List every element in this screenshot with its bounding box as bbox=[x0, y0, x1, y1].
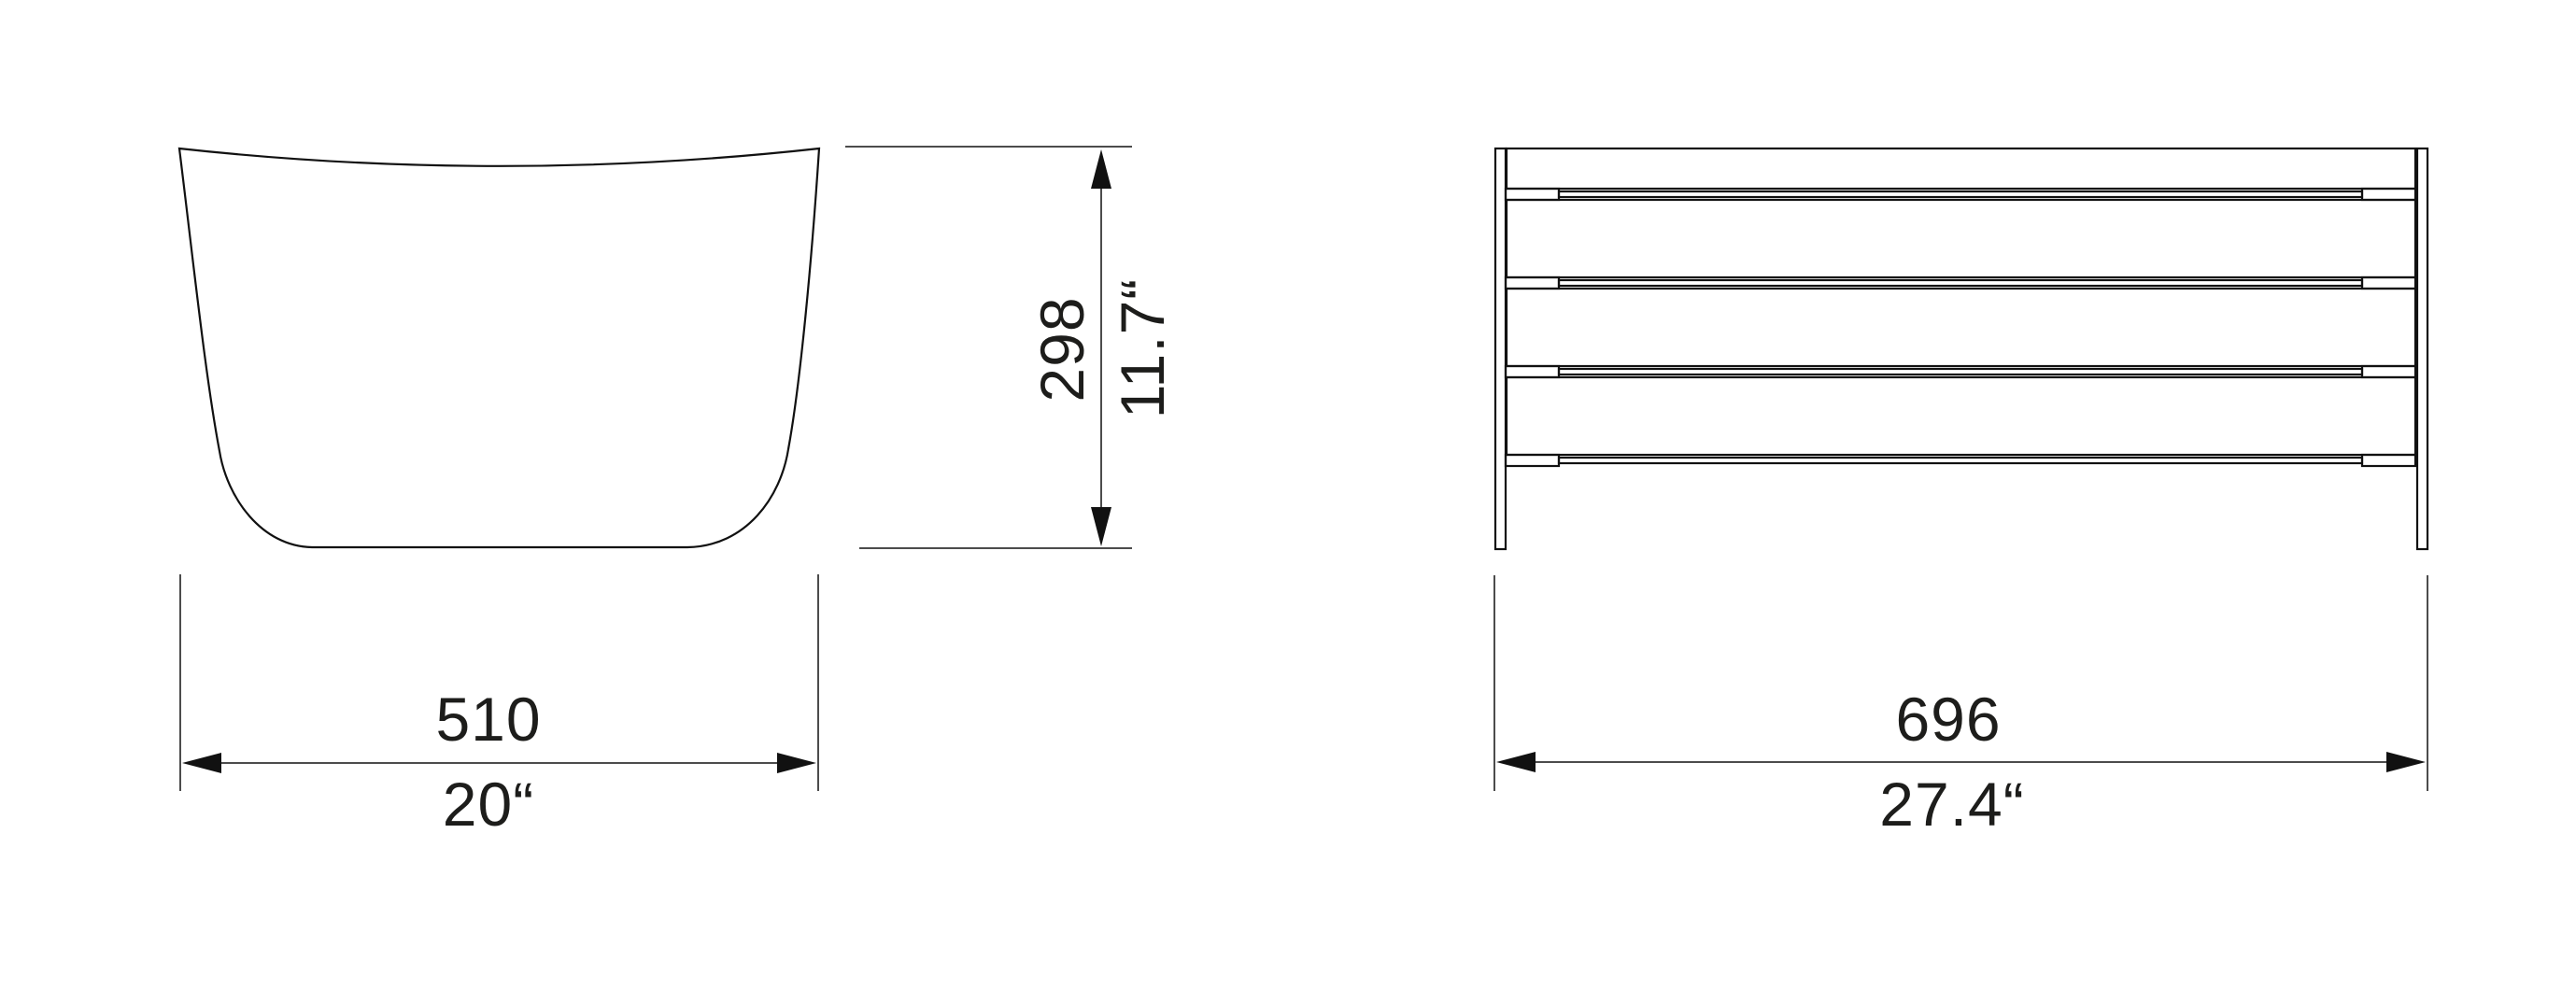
front-view: 696 27.4“ bbox=[1494, 148, 2427, 839]
gap-rail-3 bbox=[1506, 366, 2415, 377]
dim-arrowhead-right bbox=[2386, 752, 2426, 772]
height-label-mm: 298 bbox=[1027, 296, 1097, 402]
cross-rail bbox=[1559, 191, 2362, 197]
dim-arrowhead-left bbox=[182, 753, 221, 773]
side-view: 298 11.7“ 510 20“ bbox=[179, 147, 1177, 839]
front-width-label-mm: 696 bbox=[1895, 685, 2001, 754]
gap-end-block-right bbox=[2362, 455, 2415, 466]
width-label-mm: 510 bbox=[435, 685, 541, 754]
gap-rail-1 bbox=[1506, 189, 2415, 200]
dim-arrowhead-down bbox=[1091, 507, 1111, 546]
seat-shell-outline bbox=[179, 148, 819, 547]
gap-end-block-left bbox=[1506, 455, 1559, 466]
gap-end-block-left bbox=[1506, 366, 1559, 377]
front-width-label-inches: 27.4“ bbox=[1879, 770, 2024, 839]
dim-arrowhead-right bbox=[777, 753, 816, 773]
height-dimension: 298 11.7“ bbox=[845, 147, 1177, 548]
dimension-drawing-svg: 298 11.7“ 510 20“ bbox=[0, 0, 2576, 1003]
dim-arrowhead-up bbox=[1091, 149, 1111, 189]
gap-end-block-right bbox=[2362, 366, 2415, 377]
front-width-dimension: 696 27.4“ bbox=[1494, 575, 2427, 839]
dim-arrowhead-left bbox=[1496, 752, 1536, 772]
right-leg bbox=[2417, 148, 2427, 549]
slat-1 bbox=[1507, 200, 2415, 277]
width-dimension: 510 20“ bbox=[180, 574, 818, 839]
gap-end-block-left bbox=[1506, 277, 1559, 289]
gap-end-block-right bbox=[2362, 277, 2415, 289]
cross-rail bbox=[1559, 369, 2362, 374]
gap-end-block-left bbox=[1506, 189, 1559, 200]
left-leg bbox=[1495, 148, 1506, 549]
width-label-inches: 20“ bbox=[443, 770, 534, 839]
slat-3 bbox=[1507, 377, 2415, 455]
gap-rail-bottom bbox=[1506, 455, 2415, 466]
top-rail bbox=[1507, 148, 2415, 189]
technical-drawing-page: 298 11.7“ 510 20“ bbox=[0, 0, 2576, 1003]
slat-2 bbox=[1507, 289, 2415, 366]
cross-rail bbox=[1559, 458, 2362, 463]
gap-end-block-right bbox=[2362, 189, 2415, 200]
height-label-inches: 11.7“ bbox=[1108, 278, 1177, 419]
gap-rail-2 bbox=[1506, 277, 2415, 289]
cross-rail bbox=[1559, 280, 2362, 286]
